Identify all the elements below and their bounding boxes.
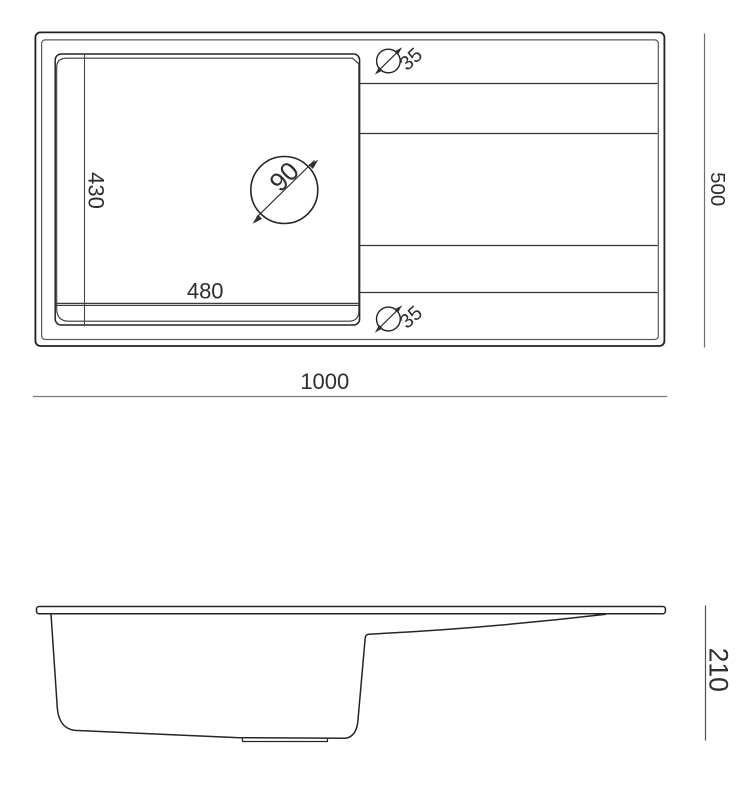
- svg-text:1000: 1000: [300, 369, 349, 394]
- svg-text:210: 210: [704, 648, 734, 692]
- svg-text:430: 430: [84, 172, 109, 209]
- svg-text:480: 480: [187, 279, 224, 304]
- svg-text:500: 500: [706, 172, 729, 206]
